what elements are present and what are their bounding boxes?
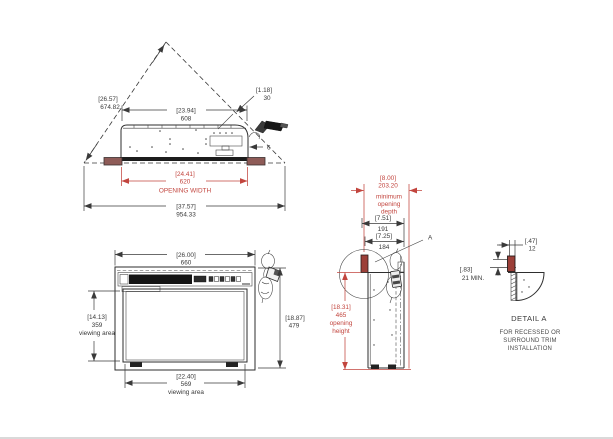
top-view: [26.57] 674.82 [1.18] 30 [23.94] 608 — [84, 42, 288, 219]
fireplace-installation-drawing: [26.57] 674.82 [1.18] 30 [23.94] 608 — [0, 0, 613, 439]
technical-drawing-page: [26.57] 674.82 [1.18] 30 [23.94] 608 — [0, 0, 613, 439]
side-foot-front — [371, 365, 379, 370]
unit-width-mm: 608 — [181, 116, 192, 123]
opening-width-in: [24.41] — [175, 171, 195, 178]
display-screen — [129, 275, 192, 285]
height-in: [18.87] — [285, 315, 305, 322]
depth-in: [8.00] — [380, 175, 396, 182]
view-h-in: [14.13] — [87, 314, 107, 321]
power-cord-plan — [249, 121, 288, 139]
view-w-label: viewing area — [168, 389, 204, 396]
overall-mm: 954.33 — [176, 212, 196, 219]
offset-leader — [237, 96, 255, 112]
side-view: [8.00] 203.20 minimum opening depth [7.5… — [330, 175, 433, 370]
trim-flange-left — [104, 158, 122, 166]
diagonal-dim-arrow-top — [153, 45, 165, 63]
rivet-dots-side — [373, 281, 392, 345]
trim-dim-mm: 12 — [528, 246, 536, 253]
offset-dim-mm: 30 — [263, 95, 271, 102]
height-mm: 479 — [289, 323, 300, 330]
detail-marker-label: A — [428, 235, 433, 242]
trim-section-detail — [508, 256, 516, 272]
oheight-l1: opening — [330, 320, 353, 327]
detail-title: DETAIL A — [511, 314, 547, 323]
front-view: [26.00] 660 — [79, 250, 305, 396]
clear-in: [.83] — [460, 267, 473, 274]
view-h-label: viewing area — [79, 330, 115, 337]
trim-flange-right — [247, 158, 265, 166]
power-cord-front — [259, 250, 282, 303]
d2-in: [7.25] — [376, 233, 392, 240]
junction-box-tab — [222, 146, 229, 150]
view-h-mm: 359 — [92, 322, 103, 329]
d1-in: [7.51] — [375, 215, 391, 222]
front-face-edge — [120, 157, 249, 161]
detail-a-view: [.47] 12 [.83] 21 MIN. DETAIL A FOR RECE… — [460, 238, 561, 352]
detail-note-2: SURROUND TRIM — [503, 338, 557, 344]
front-width-in: [26.00] — [176, 252, 196, 259]
unit-outline-plan — [121, 125, 248, 157]
oheight-mm: 465 — [336, 312, 347, 319]
diagonal-dim-in: [26.57] — [98, 96, 118, 103]
detail-note-3: INSTALLATION — [508, 346, 552, 352]
overall-in: [37.57] — [176, 204, 196, 211]
sensor-window — [120, 275, 128, 285]
trim-dim-in: [.47] — [525, 238, 538, 245]
button-row — [194, 276, 241, 282]
detail-note-1: FOR RECESSED OR — [499, 330, 560, 336]
depth-l1: minimum — [376, 194, 402, 201]
rivet-dots-detail — [521, 279, 529, 292]
depth-l2: opening — [378, 201, 401, 208]
view-w-in: [22.40] — [176, 374, 196, 381]
trim-section-side — [361, 255, 368, 273]
d1-mm: 191 — [378, 226, 389, 233]
unit-width-in: [23.94] — [176, 108, 196, 115]
diagonal-dim-mm: 674.82 — [100, 104, 120, 111]
oheight-in: [18.31] — [331, 304, 351, 311]
power-cord-side — [387, 249, 403, 304]
offset-dim-in: [1.18] — [256, 87, 272, 94]
view-w-mm: 569 — [181, 381, 192, 388]
foot-left — [130, 363, 142, 368]
foot-right — [226, 363, 238, 368]
diagonal-dim-arrow-bottom — [86, 144, 97, 161]
d2-mm: 184 — [379, 244, 390, 251]
clear-mm: 21 MIN. — [462, 275, 485, 282]
terminal-box — [216, 150, 233, 156]
opening-width-mm: 620 — [180, 179, 191, 186]
brand-mark — [242, 283, 250, 285]
viewing-area-window — [126, 292, 244, 361]
depth-mm: 203.20 — [378, 183, 398, 190]
glass-frame — [123, 289, 247, 362]
junction-box — [210, 136, 242, 146]
front-width-mm: 660 — [181, 260, 192, 267]
side-foot-back — [388, 365, 396, 370]
corner-mark: 6 — [267, 145, 271, 152]
opening-width-label: OPENING WIDTH — [159, 188, 212, 195]
oheight-l2: height — [332, 328, 350, 335]
